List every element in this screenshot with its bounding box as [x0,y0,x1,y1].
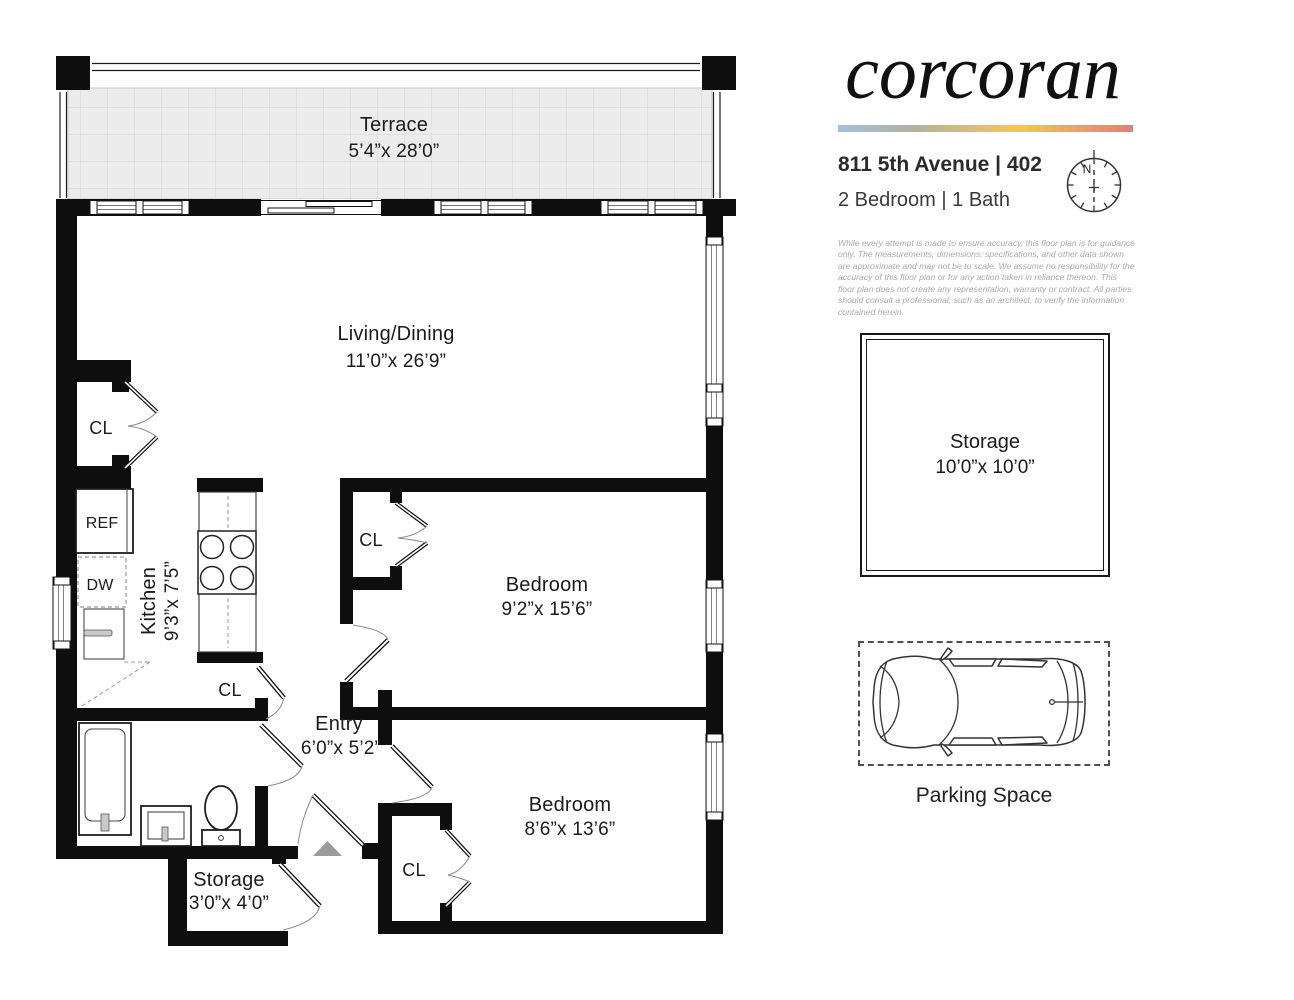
bedroom2-closet-label: CL [402,860,425,880]
kitchen-faucet [84,630,112,636]
storage-closet-label: Storage [193,869,264,891]
living-dining-dims: 11’0”x 26’9” [346,351,446,372]
kitchen-window [53,577,71,649]
parking-space-box [858,641,1110,766]
burner [201,536,224,559]
storage-closet-dims: 3’0”x 4’0” [189,893,269,914]
storage-room-label: Storage [950,431,1020,454]
tub-faucet [101,814,109,831]
brand-logo: corcoran [832,30,1134,116]
compass-north-label: N [1083,162,1092,176]
burner [201,567,224,590]
disclaimer-text: While every attempt is made to ensure ac… [838,238,1136,318]
terrace-dims: 5’4”x 28’0” [349,141,440,162]
refrigerator-label: REF [86,515,119,532]
floorplan-page: Terrace 5’4”x 28’0” Living/Dining 11’0”x… [0,0,1294,1000]
storage-room-dims: 10’0”x 10’0” [935,457,1034,479]
bedroom1-label: Bedroom [506,574,589,596]
kitchen-dims: 9’3”x 7’5” [162,561,183,641]
entry-label: Entry [315,713,363,735]
bedroom1-dims: 9’2”x 15’6” [502,599,593,620]
terrace-label: Terrace [360,114,428,136]
bathroom-fixtures [79,723,240,846]
brand-accent-bar [838,125,1133,132]
counter-dashes [82,662,150,706]
parking-space-label: Parking Space [858,784,1110,808]
living-dining-label: Living/Dining [337,323,454,345]
burner [231,567,254,590]
sink-faucet [162,827,168,841]
dishwasher-label: DW [86,577,114,594]
entry-dims: 6’0”x 5’2” [301,738,381,759]
bedroom1-closet-label: CL [359,530,382,550]
storage-room-box: Storage 10’0”x 10’0” [860,333,1110,577]
toilet [205,786,237,830]
bedroom2-label: Bedroom [529,794,612,816]
compass-icon: N [1059,148,1129,220]
burner [231,536,254,559]
bedroom2-dims: 8’6”x 13’6” [525,819,616,840]
sliding-door [261,199,381,216]
listing-address: 811 5th Avenue | 402 [838,153,1042,177]
floor-plan: Terrace 5’4”x 28’0” Living/Dining 11’0”x… [0,0,760,1000]
car-icon [868,646,1100,758]
kitchen-label: Kitchen [138,567,160,635]
storage-room-inner: Storage 10’0”x 10’0” [866,339,1104,571]
hall-closet-label: CL [218,680,241,700]
entry-arrow [313,841,342,856]
listing-info: 2 Bedroom | 1 Bath [838,189,1010,212]
coat-closet-label: CL [89,418,112,438]
